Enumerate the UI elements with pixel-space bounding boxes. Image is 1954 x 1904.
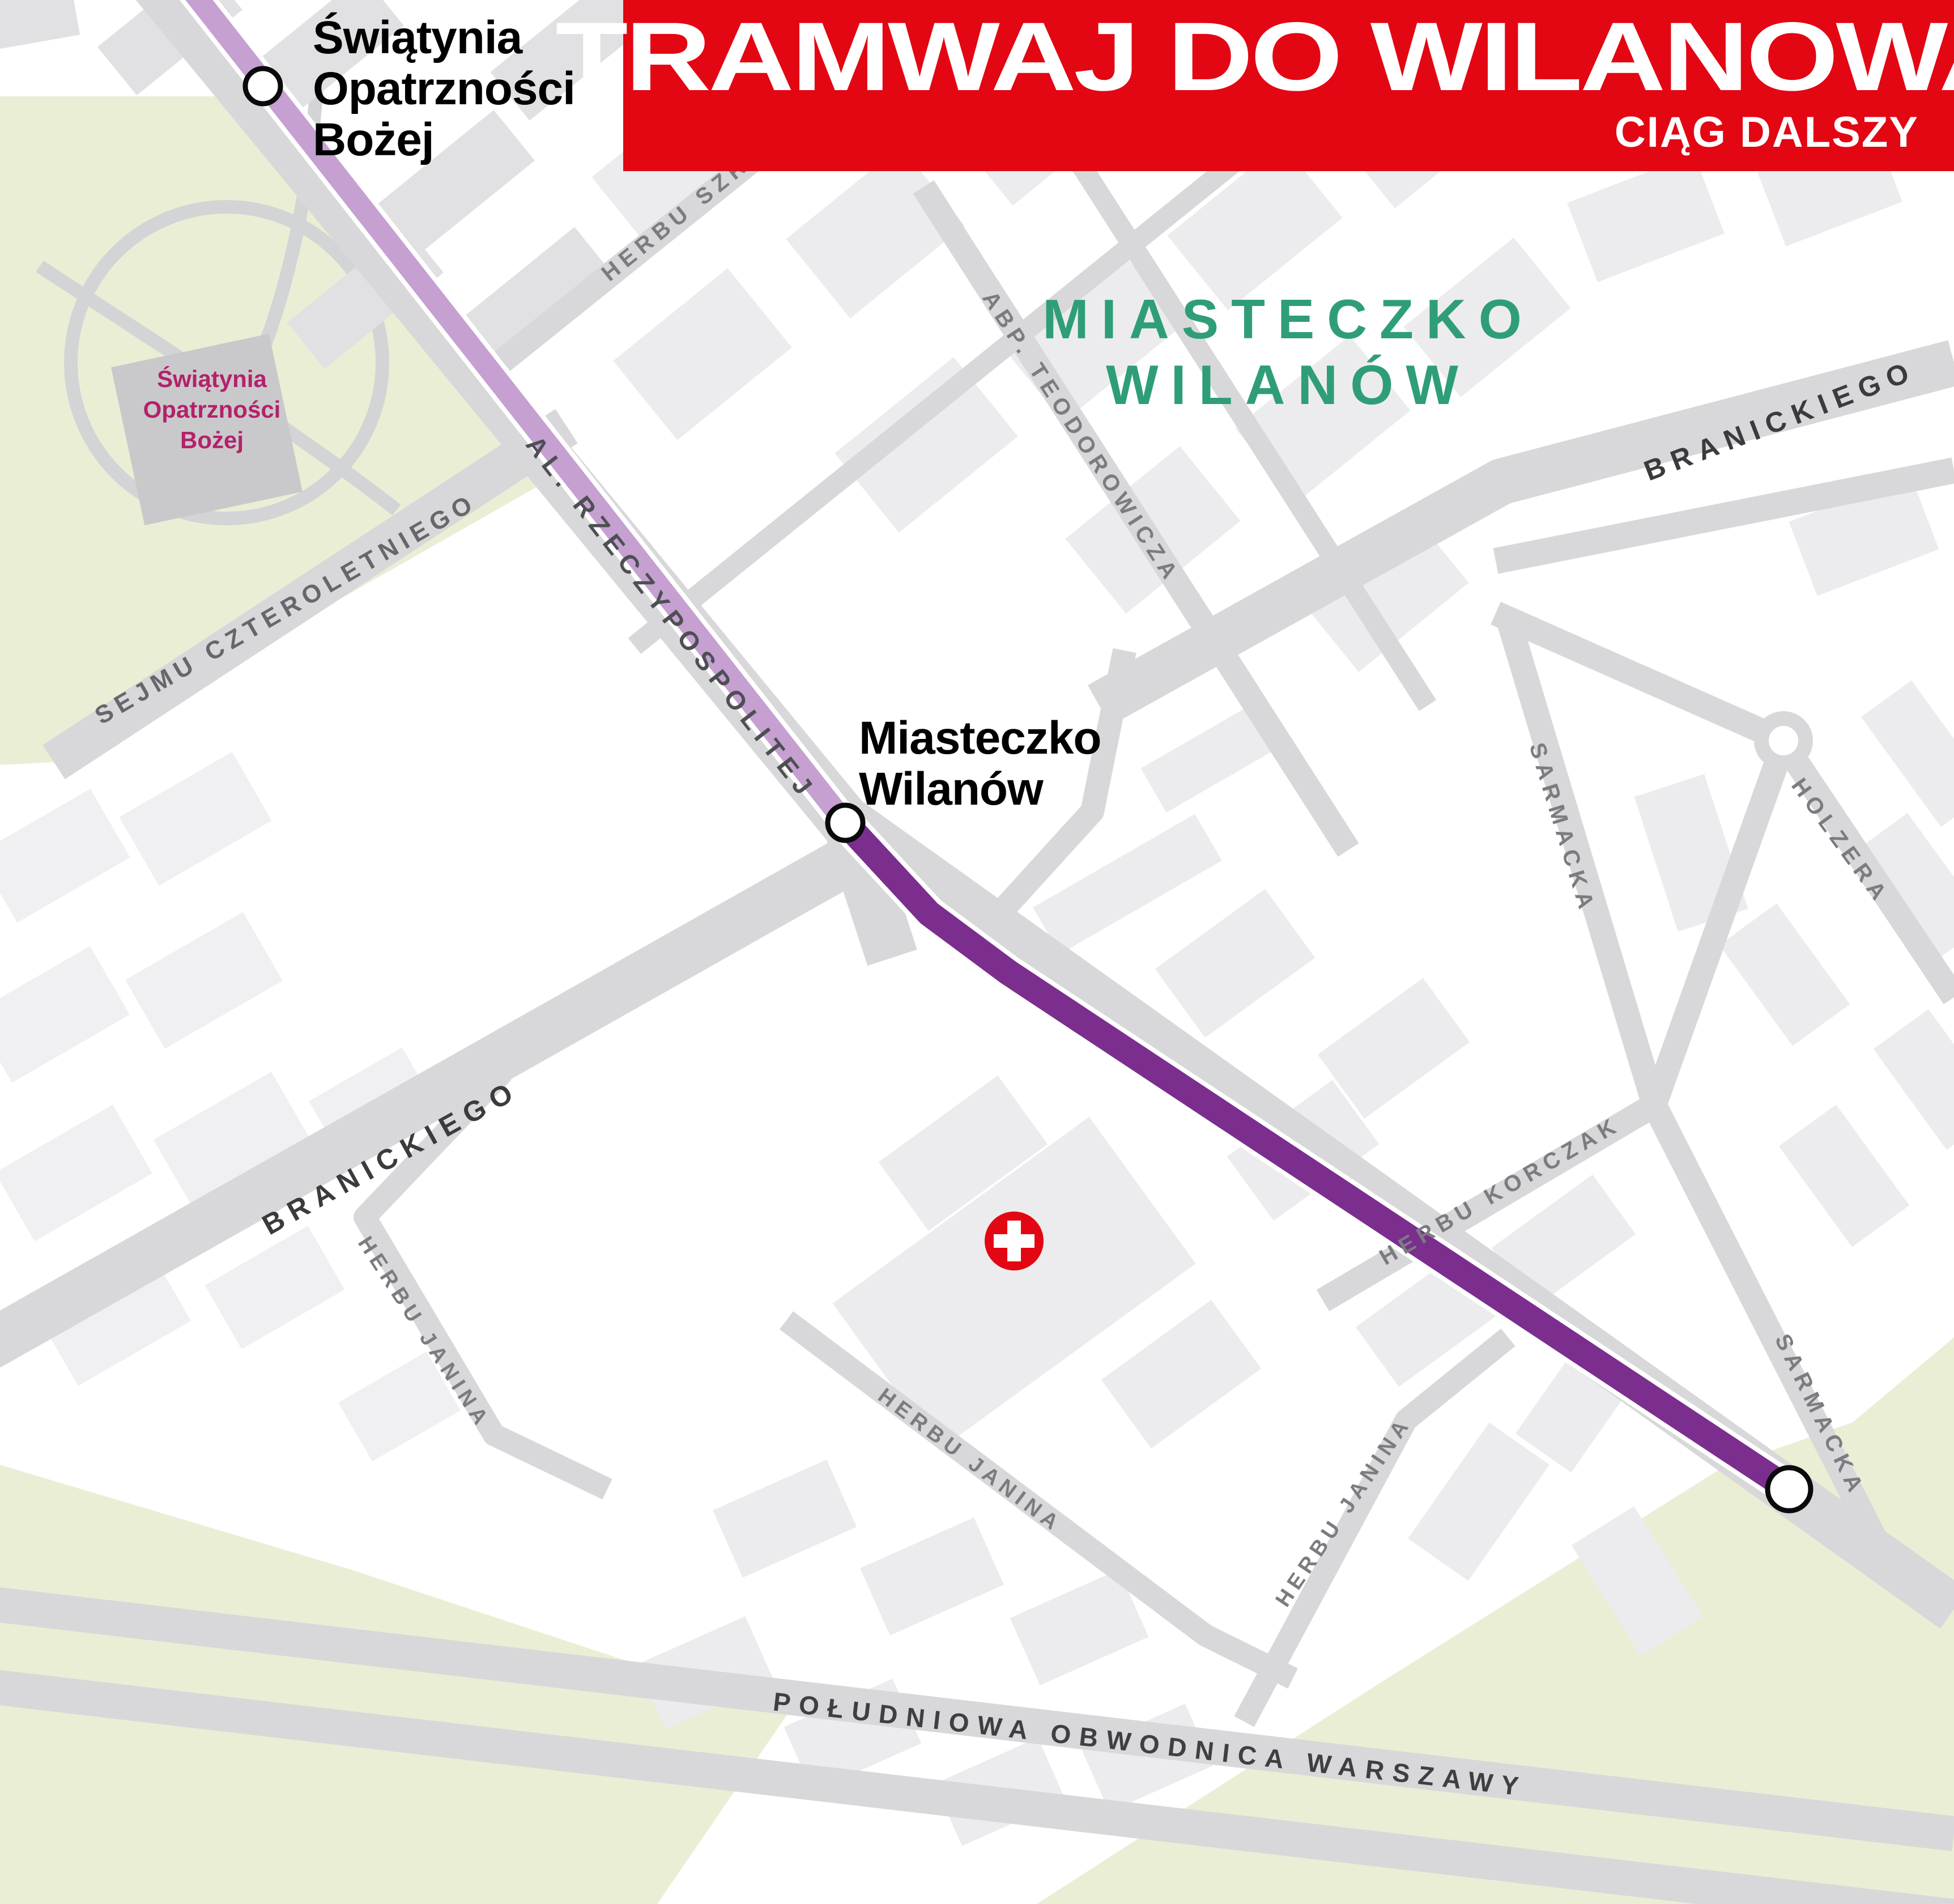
- map-infographic: AL. RZECZYPOSPOLITEJSEJMU CZTEROLETNIEGO…: [0, 0, 1954, 1904]
- station-label-line: Wilanów: [859, 764, 1101, 815]
- temple-label: Świątynia Opatrzności Bożej: [99, 364, 325, 456]
- street-label-sejmu-czteroletniego: SEJMU CZTEROLETNIEGO: [90, 488, 482, 730]
- street-label-sarmacka: SARMACKA: [1524, 740, 1600, 917]
- street-label-abp-teodorowicza: ABP. TEODOROWICZA: [977, 287, 1185, 588]
- street-label-herbu-janina: HERBU JANINA: [873, 1384, 1066, 1538]
- street-label-al-rzeczypospolitej: AL. RZECZYPOSPOLITEJ: [520, 430, 823, 805]
- street-label-branickiego: BRANICKIEGO: [257, 1073, 525, 1242]
- banner-subtitle: CIĄG DALSZY: [1615, 108, 1919, 157]
- banner-title: TRAMWAJ DO WILANOWA: [477, 6, 1954, 108]
- title-banner: TRAMWAJ DO WILANOWA CIĄG DALSZY: [623, 0, 1954, 171]
- street-label-branickiego: BRANICKIEGO: [1640, 354, 1921, 488]
- street-label-holzera: HOLZERA: [1786, 773, 1894, 909]
- station-label-miasteczko-wilanow: Miasteczko Wilanów: [859, 713, 1101, 815]
- station-label-line: Bożej: [313, 114, 575, 165]
- street-label-herbu-korczak: HERBU KORCZAK: [1375, 1112, 1625, 1271]
- street-labels-layer: AL. RZECZYPOSPOLITEJSEJMU CZTEROLETNIEGO…: [0, 0, 1954, 1904]
- temple-label-line: Świątynia: [99, 364, 325, 394]
- street-label-sarmacka: SARMACKA: [1769, 1330, 1870, 1501]
- station-label-line: Miasteczko: [859, 713, 1101, 764]
- street-label-herbu-janina: HERBU JANINA: [352, 1232, 495, 1434]
- street-label-herbu-janina: HERBU JANINA: [1271, 1412, 1417, 1612]
- temple-label-line: Bożej: [99, 425, 325, 456]
- street-label-południowa-obwodnica-warszawy: POŁUDNIOWA OBWODNICA WARSZAWY: [772, 1686, 1529, 1802]
- temple-label-line: Opatrzności: [99, 394, 325, 425]
